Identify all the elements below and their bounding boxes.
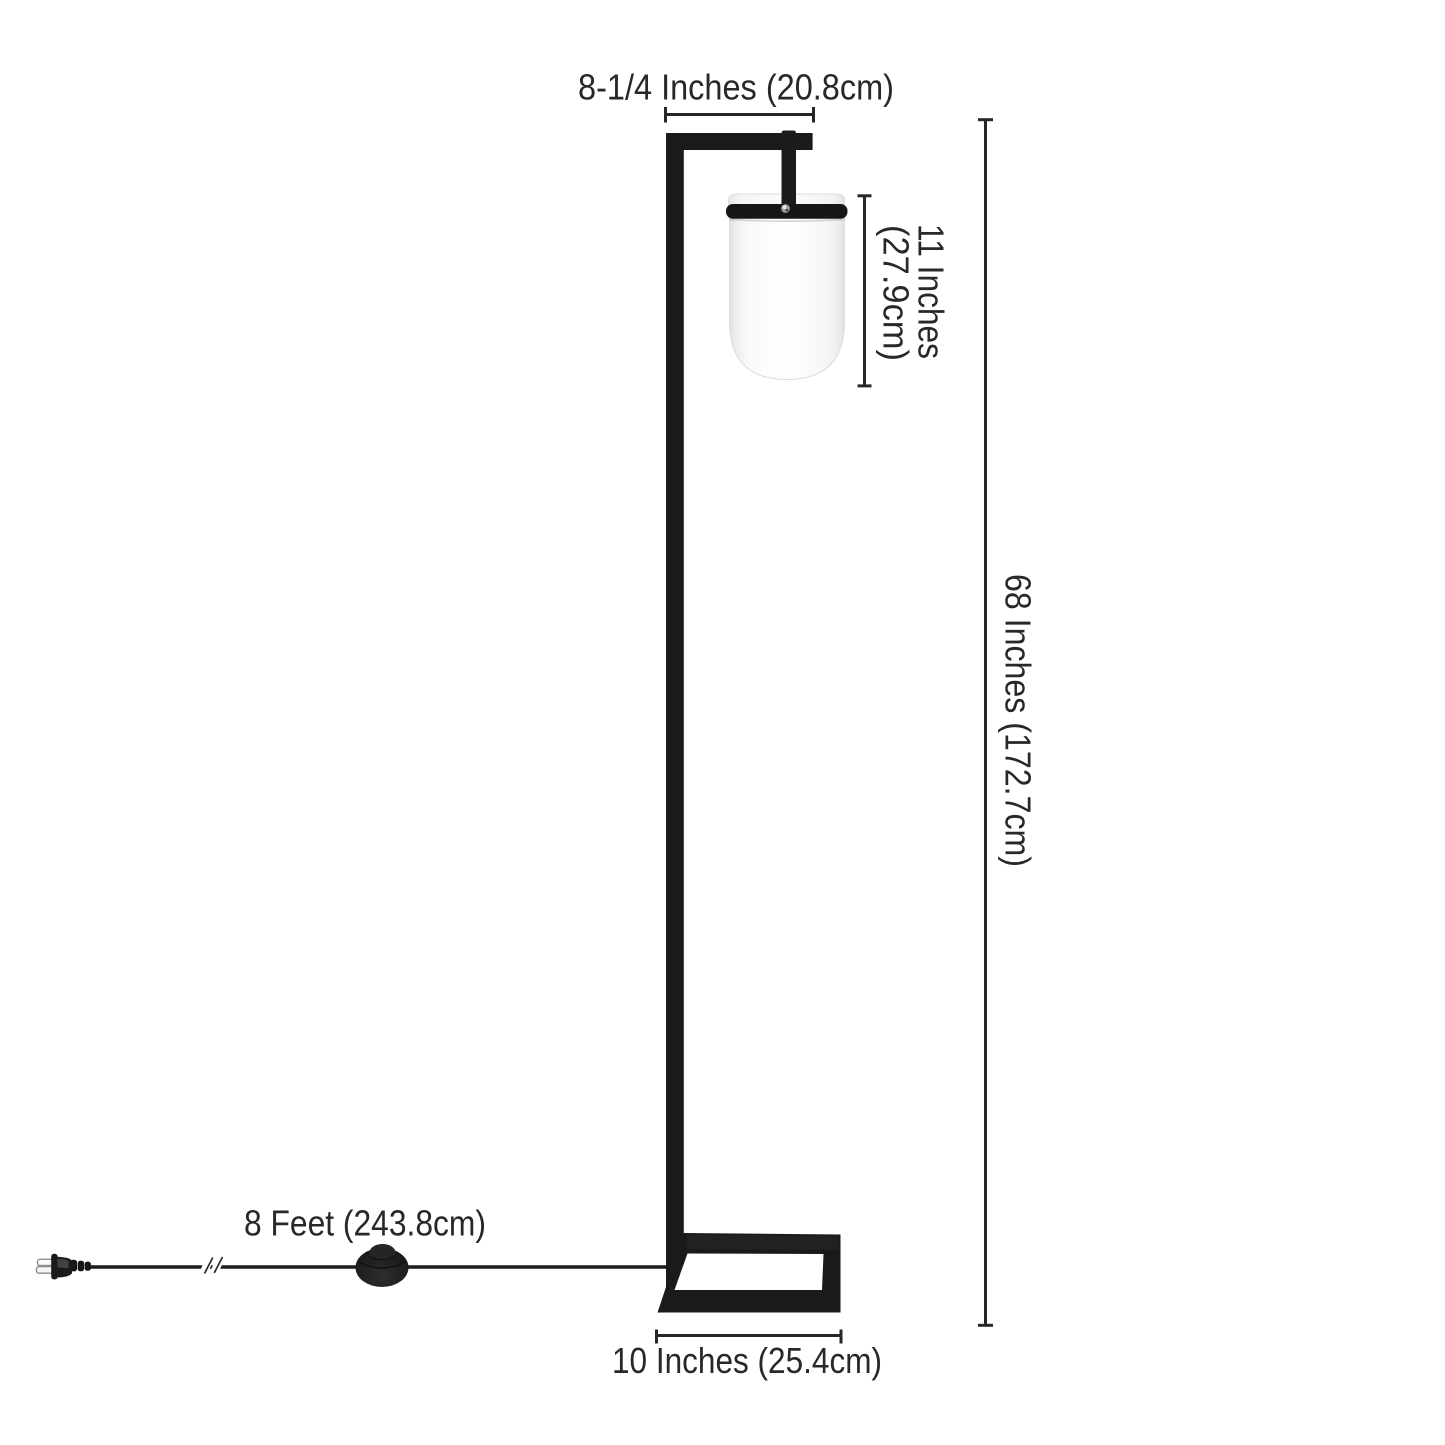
svg-text:68 Inches (172.7cm): 68 Inches (172.7cm) [998,574,1039,867]
svg-text:10 Inches (25.4cm): 10 Inches (25.4cm) [612,1340,882,1381]
svg-text:(27.9cm): (27.9cm) [876,225,917,361]
svg-text:8 Feet (243.8cm): 8 Feet (243.8cm) [244,1203,486,1244]
svg-text:8-1/4 Inches (20.8cm): 8-1/4 Inches (20.8cm) [578,67,894,108]
